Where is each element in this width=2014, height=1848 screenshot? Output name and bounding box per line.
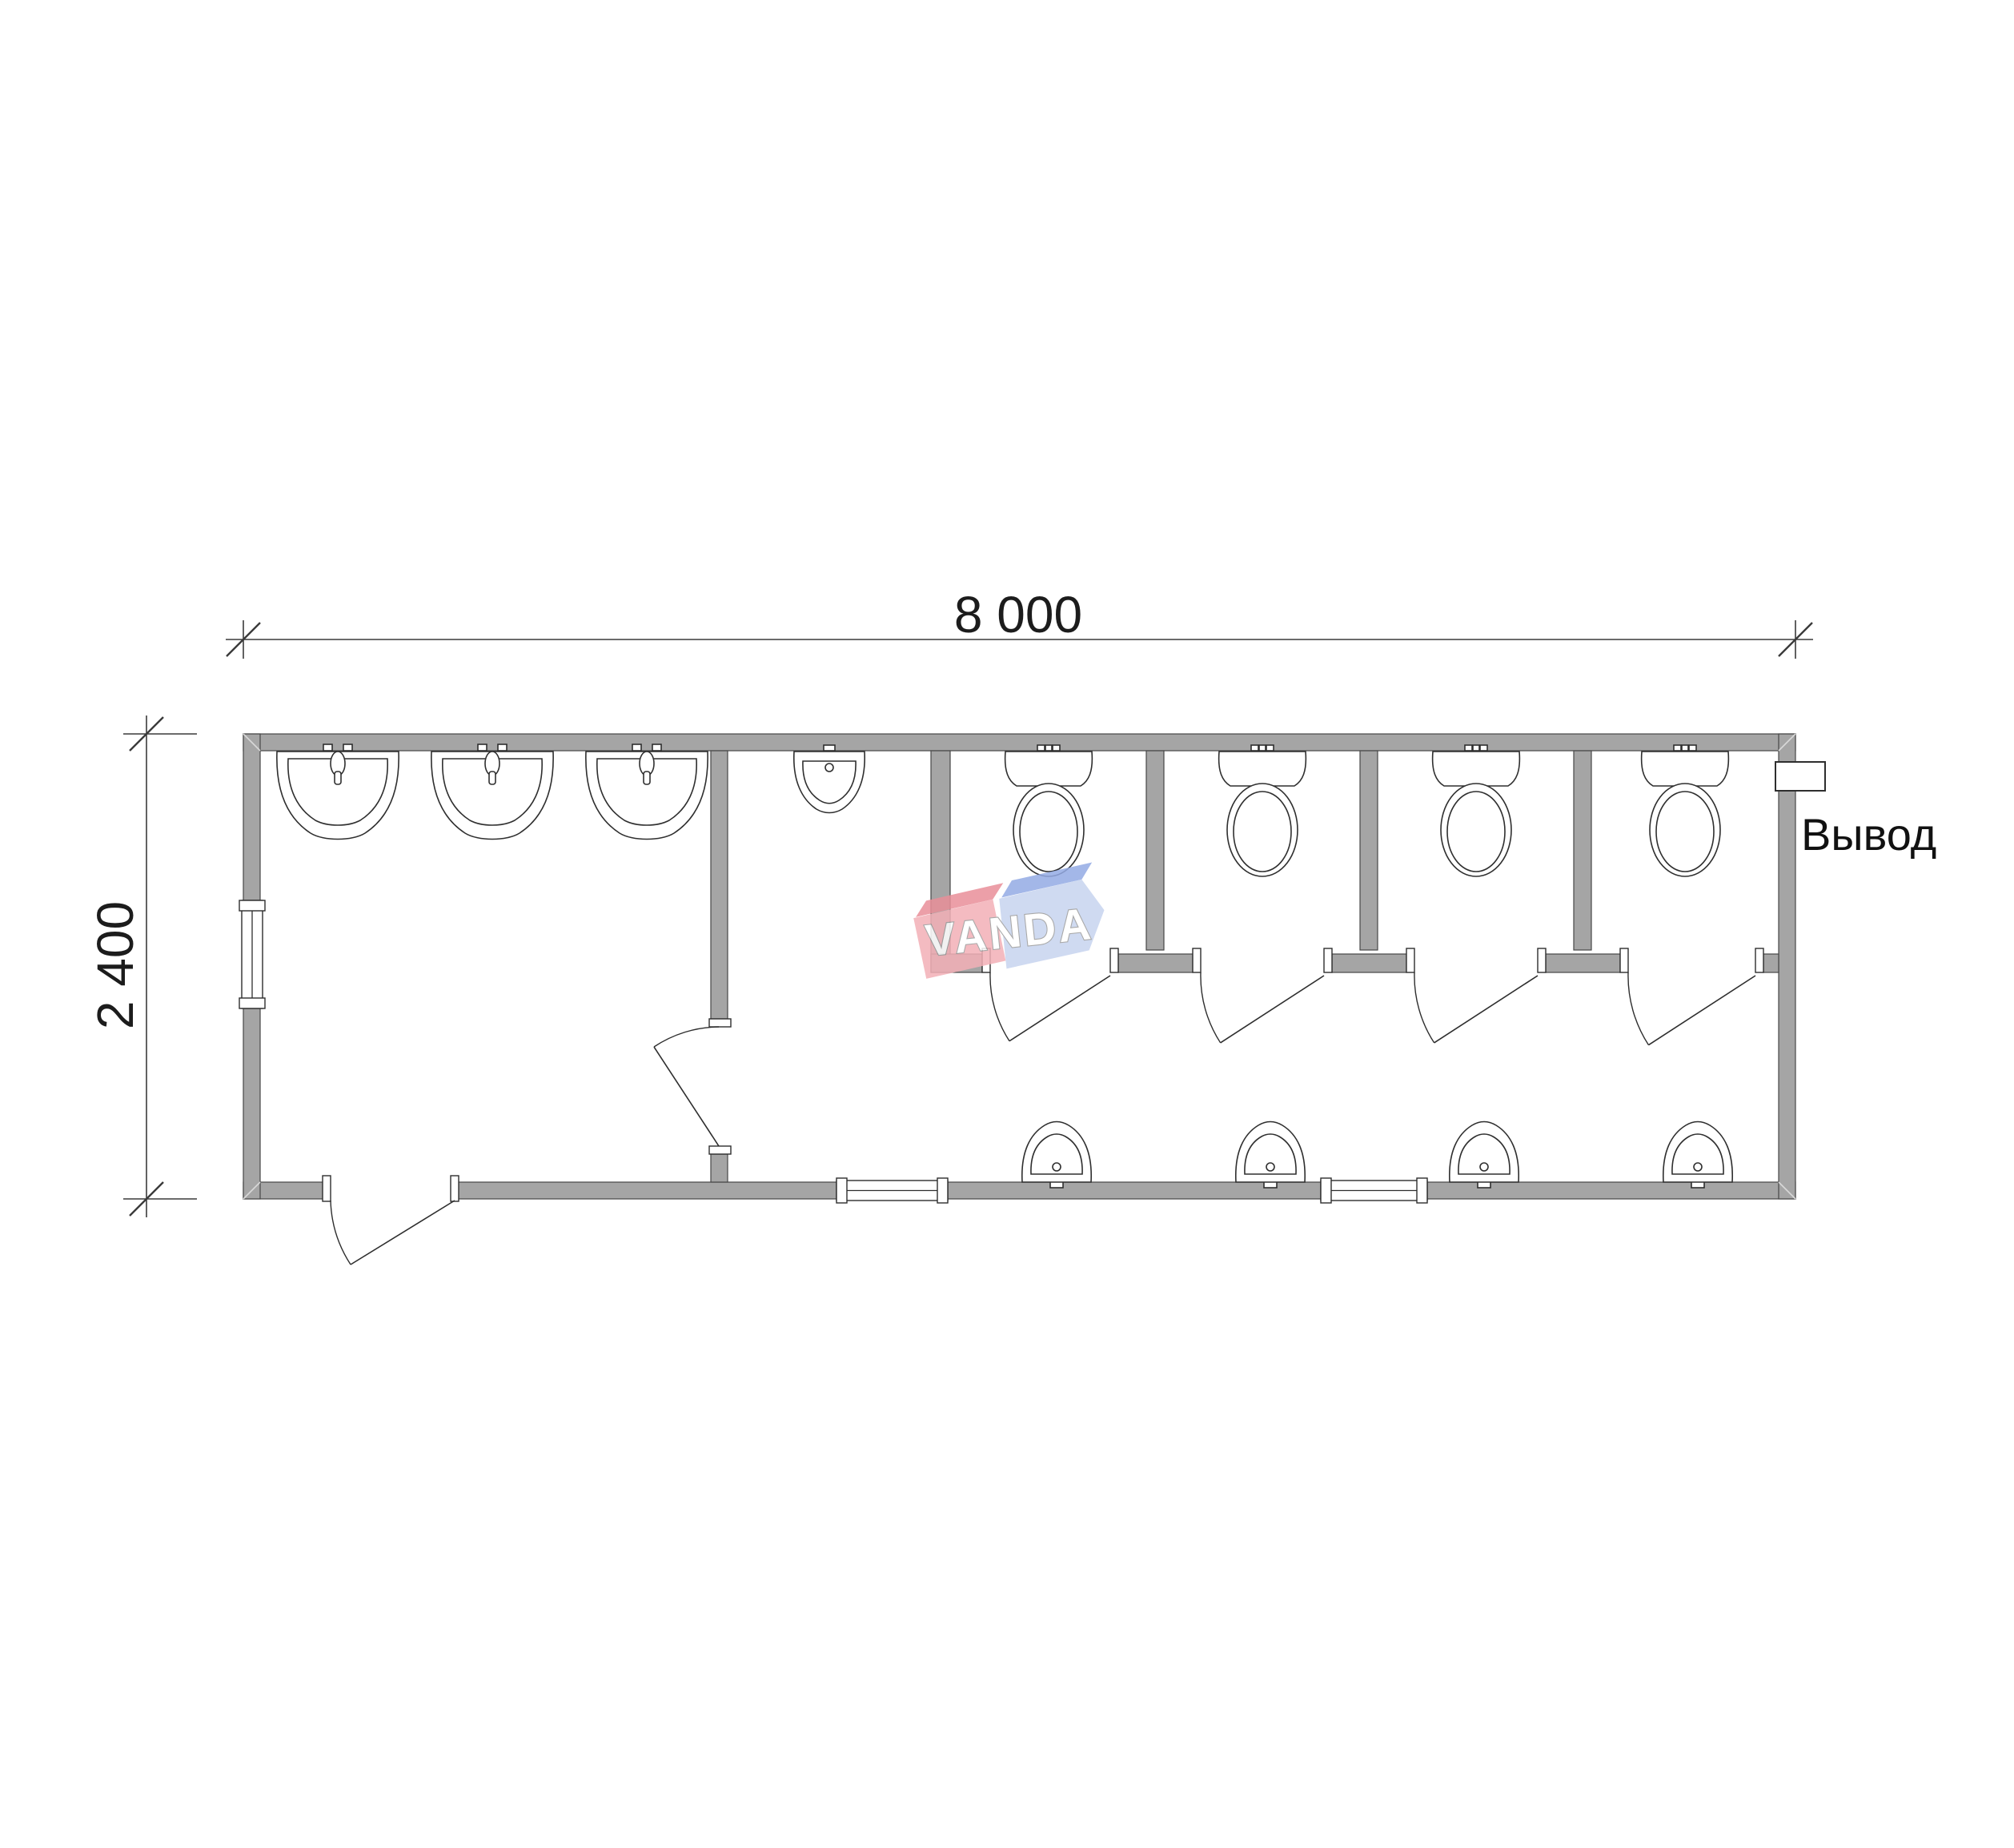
window-frame-cap [1321,1178,1331,1203]
window-frame-cap [1417,1178,1427,1203]
exterior-wall-top [243,734,1795,751]
door-jamb [1538,948,1546,972]
partition-1-2 [1146,751,1164,950]
dimension-height-label: 2 400 [86,901,144,1029]
door-jamb [1110,948,1118,972]
exterior-wall-right [1779,734,1795,1199]
door-jamb [1620,948,1628,972]
sewage-outlet-symbol [1775,762,1825,791]
dimension-width-label: 8 000 [954,586,1082,643]
window-frame-cap [836,1178,847,1203]
window-frame-cap [239,998,265,1008]
door-jamb [451,1176,459,1201]
washroom-divider-wall [711,751,728,1019]
door-jamb [1755,948,1763,972]
floor-plan-page: 8 000 2 400 Вывод VANDA [0,0,2014,1848]
front-wall-1 [1118,954,1193,972]
front-wall-2 [1332,954,1406,972]
exterior-wall-bottom [243,1182,1795,1199]
stall-4-right-stub [1763,954,1779,972]
door-jamb [1324,948,1332,972]
washroom-divider-stub [711,1154,728,1182]
front-wall-3 [1546,954,1620,972]
door-jamb [1406,948,1414,972]
window-frame-cap [937,1178,948,1203]
outlet-label: Вывод [1801,809,1936,860]
partition-3-4 [1574,751,1591,950]
door-jamb [709,1146,731,1154]
door-jamb [323,1176,331,1201]
partition-2-3 [1360,751,1378,950]
door-jamb [709,1019,731,1027]
door-jamb [1193,948,1201,972]
floor-plan-drawing: 8 000 2 400 Вывод VANDA [0,0,2014,1848]
window-frame-cap [239,900,265,911]
entrance-opening [331,1181,451,1201]
